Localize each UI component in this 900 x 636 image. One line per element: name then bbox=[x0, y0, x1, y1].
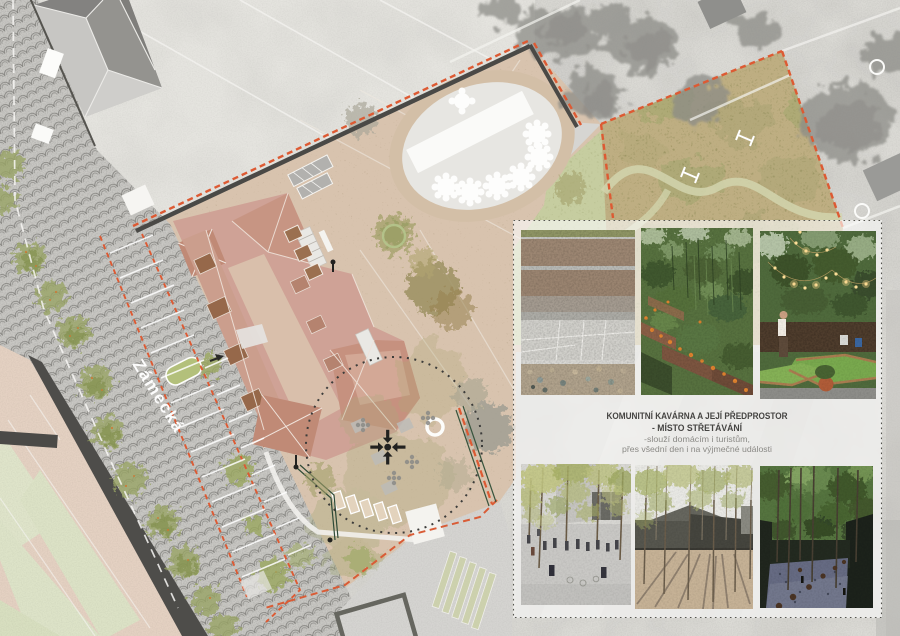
svg-text:KOMUNITNÍ KAVÁRNA A JEJÍ PŘEDP: KOMUNITNÍ KAVÁRNA A JEJÍ PŘEDPROSTOR bbox=[607, 410, 789, 421]
svg-text:-slouží domácím i turistům,: -slouží domácím i turistům, bbox=[644, 434, 750, 444]
svg-text:- MÍSTO STŘETÁVÁNÍ: - MÍSTO STŘETÁVÁNÍ bbox=[652, 422, 743, 433]
svg-text:přes všední den i na výjmečné: přes všední den i na výjmečné události bbox=[622, 444, 772, 454]
